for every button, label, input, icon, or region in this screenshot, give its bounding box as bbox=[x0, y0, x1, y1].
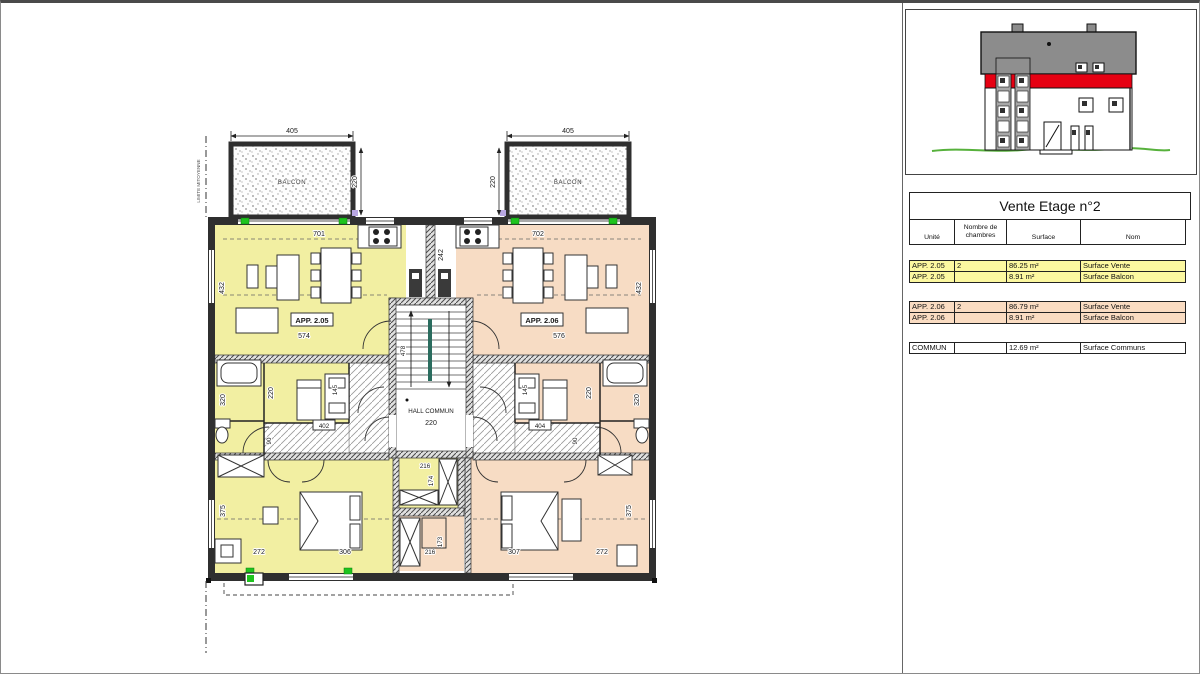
dim-balcony-right-w: 405 bbox=[562, 128, 574, 135]
dim-center-w-top: 216 bbox=[420, 463, 431, 470]
stair-handrail bbox=[428, 319, 432, 381]
svg-text:APP. 2.06: APP. 2.06 bbox=[525, 316, 558, 325]
dim-bath-right: 320 bbox=[634, 394, 641, 406]
header-chambres: Nombre de chambres bbox=[954, 219, 1007, 245]
door-tag-right: 404 bbox=[535, 423, 546, 430]
sales-table: Vente Etage n°2 Unité Nombre de chambres… bbox=[909, 192, 1191, 367]
dim-bed1-right-a: 307 bbox=[508, 549, 520, 556]
cell-chambres bbox=[954, 271, 1007, 283]
cell-unit: APP. 2.05 bbox=[909, 271, 955, 283]
table-row: APP. 2.06 8.91 m² Surface Balcon bbox=[909, 312, 1186, 324]
sensor-marker-left bbox=[352, 210, 358, 216]
balcony-left-label: BALCON bbox=[278, 180, 306, 186]
cell-chambres bbox=[954, 312, 1007, 324]
header-unite: Unité bbox=[909, 219, 955, 245]
door-tag-left: 402 bbox=[319, 423, 330, 430]
table-group-commun: COMMUN 12.69 m² Surface Communs bbox=[909, 342, 1186, 354]
table-group-app206: APP. 2.06 2 86.79 m² Surface Vente APP. … bbox=[909, 301, 1186, 324]
cell-surface: 8.91 m² bbox=[1006, 271, 1081, 283]
dim-center-h-bot: 173 bbox=[437, 536, 444, 547]
cell-nom: Surface Balcon bbox=[1080, 312, 1186, 324]
cell-surface: 8.91 m² bbox=[1006, 312, 1081, 324]
cell-surface: 12.69 m² bbox=[1006, 342, 1081, 354]
cell-nom: Surface Balcon bbox=[1080, 271, 1186, 283]
dim-bed1-left-b: 306 bbox=[339, 549, 351, 556]
dim-balcony-left-d: 220 bbox=[352, 176, 359, 188]
dim-bed2-left: 220 bbox=[268, 387, 275, 399]
table-row: APP. 2.05 8.91 m² Surface Balcon bbox=[909, 271, 1186, 283]
dim-stair-length: 478 bbox=[400, 345, 407, 356]
cell-chambres bbox=[954, 342, 1007, 354]
dim-living-right-side: 432 bbox=[636, 282, 643, 294]
dim-corr-right: 90 bbox=[572, 437, 579, 444]
table-title: Vente Etage n°2 bbox=[909, 192, 1191, 220]
dim-living-right-w: 576 bbox=[553, 333, 565, 340]
dim-center-h-top: 174 bbox=[428, 475, 435, 486]
dim-living-left-w: 574 bbox=[298, 333, 310, 340]
cell-unit: COMMUN bbox=[909, 342, 955, 354]
dim-kitchen-depth: 242 bbox=[438, 249, 445, 261]
dim-bed1-left-a: 272 bbox=[253, 549, 265, 556]
utility-box bbox=[245, 573, 263, 585]
property-limit-label: LIMITE MITOYENNE bbox=[196, 159, 201, 202]
cell-nom: Surface Communs bbox=[1080, 342, 1186, 354]
dim-balcony-right-d: 220 bbox=[490, 176, 497, 188]
kitchen-right bbox=[456, 225, 499, 248]
dim-balcony-left-w: 405 bbox=[286, 128, 298, 135]
dim-bed1-right-b: 272 bbox=[596, 549, 608, 556]
header-nom: Nom bbox=[1080, 219, 1186, 245]
panel-divider bbox=[902, 3, 903, 674]
table-group-app205: APP. 2.05 2 86.25 m² Surface Vente APP. … bbox=[909, 260, 1186, 283]
elevation-drawing bbox=[906, 10, 1196, 174]
elevation-box bbox=[905, 9, 1197, 175]
table-row: COMMUN 12.69 m² Surface Communs bbox=[909, 342, 1186, 354]
table-header-row: Unité Nombre de chambres Surface Nom bbox=[909, 219, 1186, 245]
dim-center-w-bot: 216 bbox=[425, 549, 436, 556]
svg-text:APP. 2.05: APP. 2.05 bbox=[295, 316, 328, 325]
sensor-marker-right bbox=[500, 210, 506, 216]
floor-plan: BALCON BALCON 405 405 220 220 701 702 24… bbox=[1, 3, 901, 674]
app-left-tag: APP. 2.05 bbox=[291, 313, 333, 326]
drawing-sheet: BALCON BALCON 405 405 220 220 701 702 24… bbox=[0, 0, 1200, 674]
dim-closet-left: 145 bbox=[332, 384, 339, 395]
lower-floor-outline bbox=[224, 583, 513, 595]
app-right-tag: APP. 2.06 bbox=[521, 313, 563, 326]
balcony-right-label: BALCON bbox=[554, 180, 582, 186]
dim-living-right-top: 702 bbox=[532, 231, 544, 238]
cell-unit: APP. 2.06 bbox=[909, 312, 955, 324]
dim-living-left-top: 701 bbox=[313, 231, 325, 238]
hall-door-gap-left bbox=[389, 415, 396, 447]
hall-label: HALL COMMUN bbox=[408, 408, 454, 415]
dim-corr-left: 90 bbox=[266, 437, 273, 444]
dim-bed2-right: 220 bbox=[586, 387, 593, 399]
kitchen-left bbox=[358, 225, 401, 248]
dim-bed1-right-side: 375 bbox=[626, 505, 633, 517]
dim-bath-left: 320 bbox=[220, 394, 227, 406]
header-surface: Surface bbox=[1006, 219, 1081, 245]
hall-door-gap-right bbox=[466, 415, 473, 447]
dim-living-left-side: 432 bbox=[219, 282, 226, 294]
dim-hall-w: 220 bbox=[425, 420, 437, 427]
dim-bed1-left-side: 375 bbox=[220, 505, 227, 517]
dim-closet-right: 145 bbox=[522, 384, 529, 395]
